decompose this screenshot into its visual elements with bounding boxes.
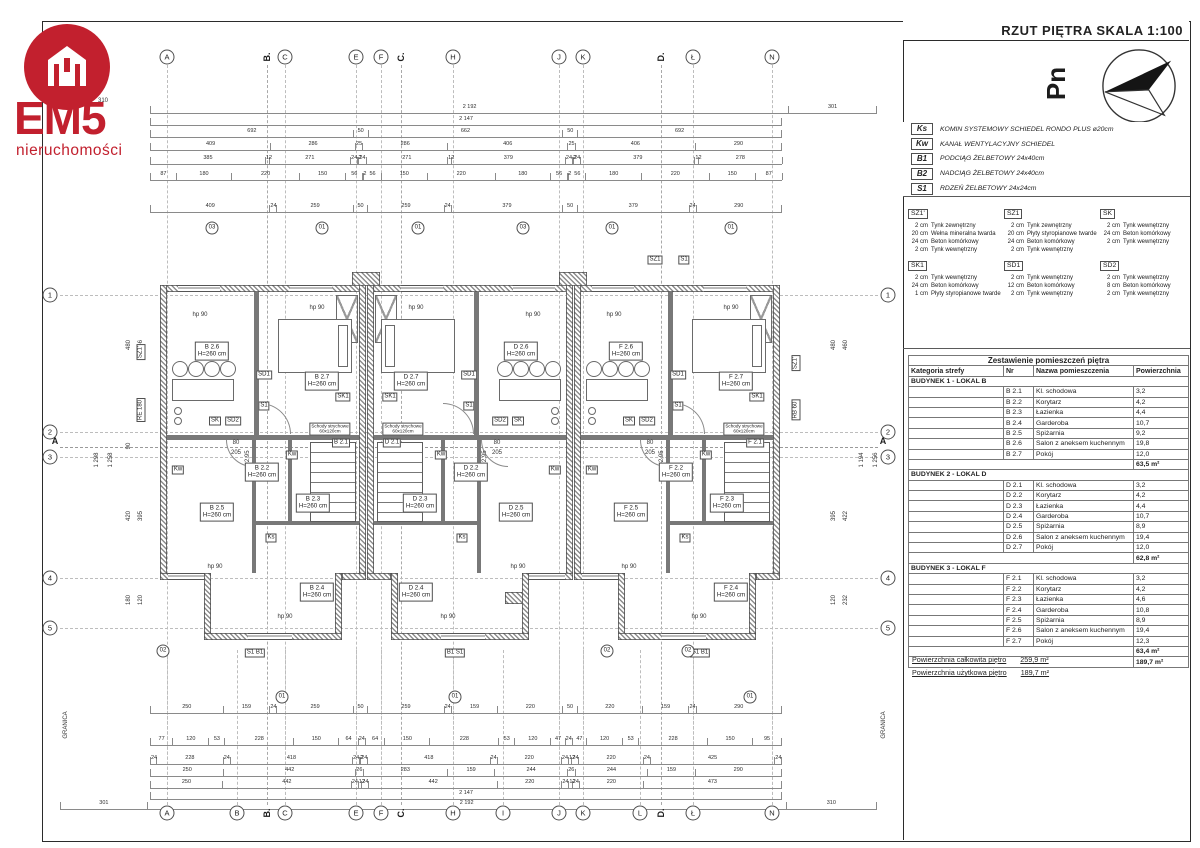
axis-circle: 3 [881,450,896,465]
detail-mark: 01 [744,691,757,704]
attic-stairs-label: Schody strychowe60x120cm [382,423,423,436]
interior-wall [254,292,259,435]
stair-room-chip: D 2.1 [383,439,401,448]
sill-height-label: hp 90 [192,312,207,318]
sofa-seat [529,361,545,377]
spacer [909,553,1134,563]
wall-layer: 2 cmTynk zewnętrzny [1004,222,1098,230]
wall-type-chip: Ks [456,534,467,543]
wall-type-chip: Ks [679,534,690,543]
detail-mark: 01 [449,691,462,704]
dimension-segment: 120 [515,738,551,745]
dimension-segment: 24 [491,757,498,764]
category-cell [909,594,1004,604]
dimension-segment: 259 [277,706,353,713]
exterior-wall [367,573,391,580]
wall-layer: 20 cmPłyty styropianowe twarde [1004,230,1098,238]
window [704,285,746,292]
axis-circle: L [633,806,648,821]
door-size-label: 205 [492,450,502,456]
wall-type-chip: S1 B1 [245,649,265,658]
dimension-segment: 24 [566,157,573,164]
room-area: 9,2 [1134,428,1189,438]
drawing-title: RZUT PIĘTRA SKALA 1:100 [903,21,1189,41]
axis-circle: 1 [43,288,58,303]
axis-circle: E [349,806,364,821]
legend-code: B2 [911,168,933,180]
category-cell [909,439,1004,449]
room-schedule: Zestawienie pomieszczeń piętraKategoria … [908,355,1189,668]
dimension-segment: 379 [578,205,690,212]
column-header: Nr [1004,366,1034,376]
wall-type-chip: S1 [672,402,683,411]
room-name: Pokój [1034,543,1134,553]
dimension-segment: 286 [271,143,356,150]
category-cell [909,605,1004,615]
room-name: Garderoba [1034,418,1134,428]
room-nr: F 2.3 [1004,594,1034,604]
dimension-segment: 409 [150,143,271,150]
exterior-wall [367,285,374,580]
sill-height-label: hp 90 [621,564,636,570]
category-cell [909,626,1004,636]
axis-circle: B [230,806,245,821]
interior-wall [581,435,773,440]
dimension-row: 2501592425950259241592205022015924290 [150,706,782,714]
wall-layer: 2 cmTynk wewnętrzny [1100,222,1194,230]
dimension-segment: 286 [363,143,448,150]
dimension-segment: 150 [300,173,346,180]
dimension-segment: 24 [445,706,452,713]
dimension-label: 120 [831,595,837,605]
wall-type-chip: RB 60 [792,400,801,421]
dimension-segment: 77 [150,738,173,745]
dimension-segment: 379 [452,157,566,164]
dimension-label: 422 [843,511,849,521]
axis-circle: A [160,806,175,821]
wall-type-block: SD22 cmTynk wewnętrzny8 cmBeton komórkow… [1100,254,1194,298]
dimension-segment: 244 [495,769,568,776]
room-nr: B 2.1 [1004,387,1034,397]
exterior-wall [522,573,529,640]
room-area: 10,7 [1134,511,1189,521]
room-label: B 2.7H=260 cm [305,372,339,391]
room-label: B 2.3H=260 cm [296,494,330,513]
wall-layer: 24 cmBeton komórkowy [1100,230,1194,238]
room-name: Łazienka [1034,407,1134,417]
room-nr: F 2.5 [1004,615,1034,625]
exterior-wall [359,285,366,580]
room-name: Salon z aneksem kuchennym [1034,626,1134,636]
dimension-label: 1 256 [873,452,879,467]
room-schedule-table: Zestawienie pomieszczeń piętraKategoria … [908,355,1189,668]
unit-B: Schody strychowe60x120cmB 2.6H=260 cmB 2… [160,285,366,655]
legend-desc: KOMIN SYSTEMOWY SCHIEDEL RONDO PLUS ø20c… [940,126,1113,133]
wall-layer: 12 cmBeton komórkowy [1004,282,1098,290]
section-total: 63,4 m² [1134,646,1189,656]
section-marker: D. [656,53,666,62]
stove-burner [174,407,182,415]
room-area: 4,4 [1134,501,1189,511]
detail-mark: 01 [316,222,329,235]
section-header: BUDYNEK 3 - LOKAL F [909,563,1189,573]
dimension-segment: 418 [368,757,490,764]
axis-circle: K [576,806,591,821]
dimension-segment: 425 [651,757,775,764]
legend-code: Ks [911,123,933,135]
north-label: Pn [1041,67,1072,100]
wall-type-chip: Kw [586,466,598,475]
axis-circle: E [349,50,364,65]
legend-desc: NADCIĄG ŻELBETOWY 24x40cm [940,170,1044,177]
room-nr: D 2.6 [1004,532,1034,542]
room-label: F 2.4H=260 cm [714,583,748,602]
dimension-segment: 409 [150,205,270,212]
dimension-segment: 24 [775,757,782,764]
sill-height-label: hp 90 [691,614,706,620]
room-nr: D 2.7 [1004,543,1034,553]
wall-layer: 24 cmBeton komórkowy [908,238,1002,246]
drawing-sheet: EM5 nieruchomości RZUT PIĘTRA SKALA 1:10… [0,0,1200,848]
dimension-label: 1 194 [859,452,865,467]
room-name: Łazienka [1034,501,1134,511]
dimension-label: 90 [126,443,132,450]
dimension-segment: 56 [551,173,568,180]
dimension-segment: 24 [445,205,452,212]
attic-stairs-label: Schody strychowe60x120cm [723,423,764,436]
room-name: Spiżarnia [1034,522,1134,532]
dimension-segment: 150 [385,738,430,745]
dimension-segment: 228 [225,738,294,745]
room-nr: B 2.4 [1004,418,1034,428]
wall-type-chip: B1 S1 [445,649,465,658]
sofa-seat [497,361,513,377]
room-nr: B 2.7 [1004,449,1034,459]
wall-type-chip: SD1 [256,371,272,380]
dimension-segment: 24 [689,706,696,713]
dimension-segment: 692 [578,130,782,137]
legend-row: B2NADCIĄG ŻELBETOWY 24x40cm [903,166,1190,182]
room-area: 4,6 [1134,594,1189,604]
axis-circle: H [446,50,461,65]
interior-wall [477,440,481,573]
category-cell [909,574,1004,584]
dimension-segment: 271 [367,157,449,164]
legend-row: KwKANAŁ WENTYLACYJNY SCHIEDEL [903,137,1190,153]
detail-mark: 01 [606,222,619,235]
unit-F: Schody strychowe60x120cmF 2.6H=260 cmF 2… [574,285,780,655]
wall-type-chip: Ks [265,534,276,543]
dimension-segment: 24 [361,757,368,764]
axis-circle: F [374,50,389,65]
total-value: 189,7 m² [1021,668,1049,677]
room-label: D 2.2H=260 cm [454,463,488,482]
door-size-label: 205 [645,450,655,456]
dimension-segment: 385 [150,157,266,164]
wall-type-block: SK12 cmTynk wewnętrzny24 cmBeton komórko… [908,254,1002,298]
wall-layer: 24 cmBeton komórkowy [908,282,1002,290]
dimension-label: GRANICA [881,711,887,738]
dimension-segment: 24 [572,757,579,764]
axis-circle: N [765,806,780,821]
dimension-segment: 379 [581,157,695,164]
dimension-row: 2 192301 [150,106,877,114]
room-name: Kl. schodowa [1034,574,1134,584]
room-label: B 2.5H=260 cm [200,503,234,522]
dimension-segment: 220 [498,757,562,764]
dimension-label: 480 [126,340,132,350]
axis-circle: 5 [881,621,896,636]
dimension-segment: 87 [756,173,783,180]
room-nr: D 2.4 [1004,511,1034,521]
wall-type-chip: RE 180 [137,398,146,422]
window [248,633,292,640]
total-value: 259,9 m² [1020,655,1048,664]
wall-layer: 2 cmTynk wewnętrzny [1100,238,1194,246]
wall-type-chip: SZ1' [137,344,146,360]
exterior-wall [160,285,167,580]
dimension-segment: 259 [368,205,444,212]
window [168,573,204,580]
category-cell [909,532,1004,542]
dimension-segment: 220 [642,173,710,180]
room-name: Kl. schodowa [1034,480,1134,490]
wall-type-chip: SK1 [749,393,764,402]
wall-type-chip: S1 [678,256,689,265]
room-area: 19,8 [1134,439,1189,449]
dimension-segment: 220 [580,781,644,788]
room-nr: B 2.2 [1004,397,1034,407]
wall-type-block: SK2 cmTynk wewnętrzny24 cmBeton komórkow… [1100,202,1194,246]
dimension-segment: 150 [382,173,428,180]
wall-layer: 2 cmTynk wewnętrzny [1004,290,1098,298]
stair-room-chip: F 2.1 [746,439,764,448]
door-size-label: 80 [647,440,654,446]
dimension-segment: 180 [177,173,232,180]
legend-desc: RDZEŃ ŻELBETOWY 24x24cm [940,185,1036,192]
room-area: 12,0 [1134,543,1189,553]
dimension-segment: 250 [150,769,224,776]
total-line: Powierzchnia całkowita piętro259,9 m² [912,655,1049,664]
dimension-segment: 290 [696,143,782,150]
wall-type-chip: SD1 [461,371,477,380]
section-total: 62,8 m² [1134,553,1189,563]
dimension-segment: 25 [356,143,363,150]
interior-wall [474,292,479,435]
wall-type-code: SD1 [1004,261,1023,271]
dimension-segment: 283 [364,769,448,776]
room-nr: F 2.6 [1004,626,1034,636]
wall-layer: 24 cmBeton komórkowy [1004,238,1098,246]
dimension-segment: 24 [644,757,651,764]
category-cell [909,511,1004,521]
axis-circle: J [552,806,567,821]
stair-room-chip: B 2.1 [332,439,350,448]
wall-layer: 2 cmTynk wewnętrzny [908,246,1002,254]
dimension-row: 242282441824224418242202412242202442524 [150,757,782,765]
sill-height-label: hp 90 [309,305,324,311]
window [529,573,565,580]
dimension-segment: 24 [359,738,366,745]
wall-layer: 2 cmTynk wewnętrzny [1100,274,1194,282]
wall-type-chip: Kw [700,451,712,460]
wall-type-code: SD2 [1100,261,1119,271]
wall-type-chip: SZ1 [647,256,662,265]
dimension-segment: 310 [787,802,877,809]
dimension-segment: 290 [697,205,782,212]
room-nr: D 2.3 [1004,501,1034,511]
legend-desc: KANAŁ WENTYLACYJNY SCHIEDEL [940,141,1055,148]
room-name: Garderoba [1034,511,1134,521]
dimension-segment: 180 [496,173,551,180]
section-marker: B. [262,809,272,818]
room-area: 3,2 [1134,480,1189,490]
category-cell [909,615,1004,625]
column-header: Kategoria strefy [909,366,1004,376]
dimension-segment: 473 [644,781,782,788]
dimension-label: 1 298 [94,452,100,467]
room-nr: B 2.5 [1004,428,1034,438]
dimension-segment: 87 [150,173,177,180]
dimension-segment: 24 [353,757,360,764]
room-label: D 2.5H=260 cm [499,503,533,522]
detail-mark: 02 [157,645,170,658]
room-area: 3,2 [1134,387,1189,397]
dimension-segment: 220 [578,706,643,713]
sofa-seat [188,361,204,377]
room-name: Łazienka [1034,594,1134,604]
room-area: 10,7 [1134,418,1189,428]
room-name: Pokój [1034,449,1134,459]
sill-height-label: hp 90 [606,312,621,318]
dimension-segment: 53 [209,738,225,745]
category-cell [909,397,1004,407]
window [401,285,443,292]
interior-wall [167,435,359,440]
dimension-segment: 24 [150,757,157,764]
wall-type-block: SZ1'2 cmTynk zewnętrzny20 cmWełna minera… [908,202,1002,254]
axis-circle: Ł [686,806,701,821]
dimension-segment: 150 [294,738,339,745]
total-line: Powierzchnia użytkowa piętro189,7 m² [912,668,1049,677]
room-nr: F 2.2 [1004,584,1034,594]
legend-code: B1 [911,153,933,165]
dimension-segment: 159 [448,769,495,776]
room-name: Pokój [1034,636,1134,646]
dimension-segment: 278 [699,157,783,164]
dimension-segment: 24 [574,157,581,164]
window [290,285,332,292]
dimension-row: 2504422628315924426244159290 [150,769,782,777]
section-a-marker: A [880,436,887,446]
category-cell [909,407,1004,417]
dimension-segment: 259 [368,706,444,713]
bed-pillow [385,325,395,367]
room-nr: D 2.2 [1004,491,1034,501]
bed-pillow [338,325,348,367]
room-nr: F 2.7 [1004,636,1034,646]
dimension-segment: 662 [369,130,564,137]
wall-type-chip: S1 [463,402,474,411]
detail-mark: 01 [725,222,738,235]
section-a-marker: A [52,436,59,446]
dimension-segment: 379 [452,205,564,212]
window [513,285,555,292]
room-area: 3,2 [1134,574,1189,584]
window [441,633,485,640]
dimension-segment: 150 [708,738,753,745]
room-nr: B 2.6 [1004,439,1034,449]
category-cell [909,491,1004,501]
wall-type-chip: Kw [549,466,561,475]
axis-circle: K [576,50,591,65]
unit-D: Schody strychowe60x120cmD 2.6H=260 cmD 2… [367,285,573,655]
stove-burner [174,417,182,425]
dimension-segment: 24 [224,757,231,764]
dimension-segment: 24 [352,781,359,788]
dimension-segment: 250 [150,706,224,713]
sofa-seat [634,361,650,377]
axis-circle: 5 [43,621,58,636]
room-label: F 2.6H=260 cm [609,342,643,361]
chimney-block [352,272,380,286]
room-nr: F 2.4 [1004,605,1034,615]
axis-circle: 4 [881,571,896,586]
detail-mark: 03 [517,222,530,235]
kitchen-counter [586,379,648,401]
room-name: Garderoba [1034,605,1134,615]
category-cell [909,387,1004,397]
dimension-segment: 24 [351,157,358,164]
dimension-segment: 418 [231,757,353,764]
wall-type-chip: Kw [172,466,184,475]
wall-type-code: SK1 [908,261,927,271]
category-cell [909,449,1004,459]
category-cell [909,428,1004,438]
room-name: Korytarz [1034,584,1134,594]
dimension-segment: 228 [430,738,499,745]
dimension-segment: 180 [586,173,641,180]
dimension-segment: 442 [224,769,356,776]
window [178,285,220,292]
sofa-seat [204,361,220,377]
room-area: 4,2 [1134,584,1189,594]
dimension-segment: 692 [150,130,354,137]
legend-code: Kw [911,138,933,150]
axis-circle: I [496,806,511,821]
dimension-segment: 47 [573,738,587,745]
stove-burner [551,417,559,425]
sill-height-label: hp 90 [525,312,540,318]
dimension-segment: 150 [710,173,756,180]
legend-row: S1RDZEŃ ŻELBETOWY 24x24cm [903,181,1190,197]
room-label: B 2.2H=260 cm [245,463,279,482]
dimension-label: 232 [843,595,849,605]
floor-plan: AB.B.CEFC.C.HJKD.D.ŁNABCEFHIJKLŁN1122334… [0,0,903,848]
kitchen-counter [499,379,561,401]
section-header: BUDYNEK 2 - LOKAL D [909,470,1189,480]
section-marker: B. [262,53,272,62]
wall-type-chip: SK [209,417,221,426]
dimension-row: 3012 192310 [60,802,877,810]
room-label: D 2.6H=260 cm [504,342,538,361]
axis-circle: A [160,50,175,65]
sofa-seat [602,361,618,377]
dimension-segment: 50 [563,205,578,212]
category-cell [909,584,1004,594]
window [582,573,618,580]
door-size-label: 205 [231,450,241,456]
